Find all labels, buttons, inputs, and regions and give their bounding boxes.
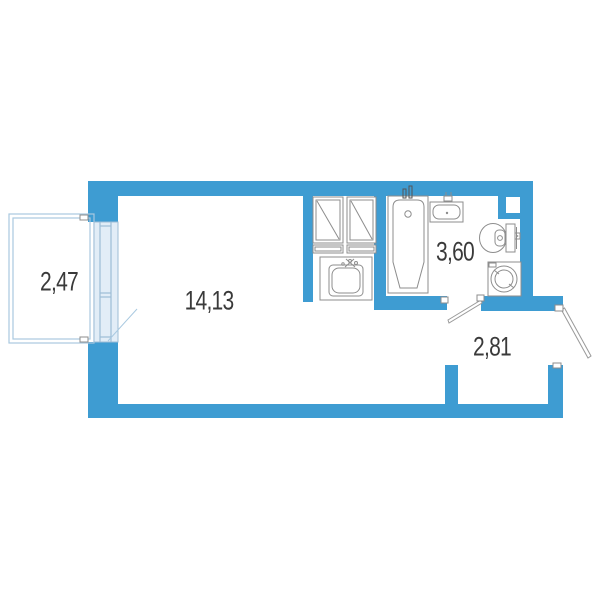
bathtub	[388, 186, 428, 293]
floor-plan: 2,47 14,13 3,60 2,81	[0, 0, 600, 600]
washing-machine	[488, 262, 521, 296]
kitchen-sink	[320, 257, 372, 300]
balcony-window	[94, 222, 118, 342]
hallway-area-label: 2,81	[473, 332, 511, 363]
entrance-door	[553, 305, 591, 368]
bathroom-area-label: 3,60	[436, 237, 474, 268]
wardrobe-unit-right	[347, 197, 376, 253]
living-room-area-label: 14,13	[185, 286, 234, 317]
wardrobe-unit-left	[313, 197, 343, 253]
bathroom-sink	[430, 192, 463, 222]
balcony-area-label: 2,47	[40, 267, 78, 298]
toilet	[480, 224, 521, 253]
plan-linework	[0, 0, 600, 600]
bathroom-door	[441, 295, 484, 323]
